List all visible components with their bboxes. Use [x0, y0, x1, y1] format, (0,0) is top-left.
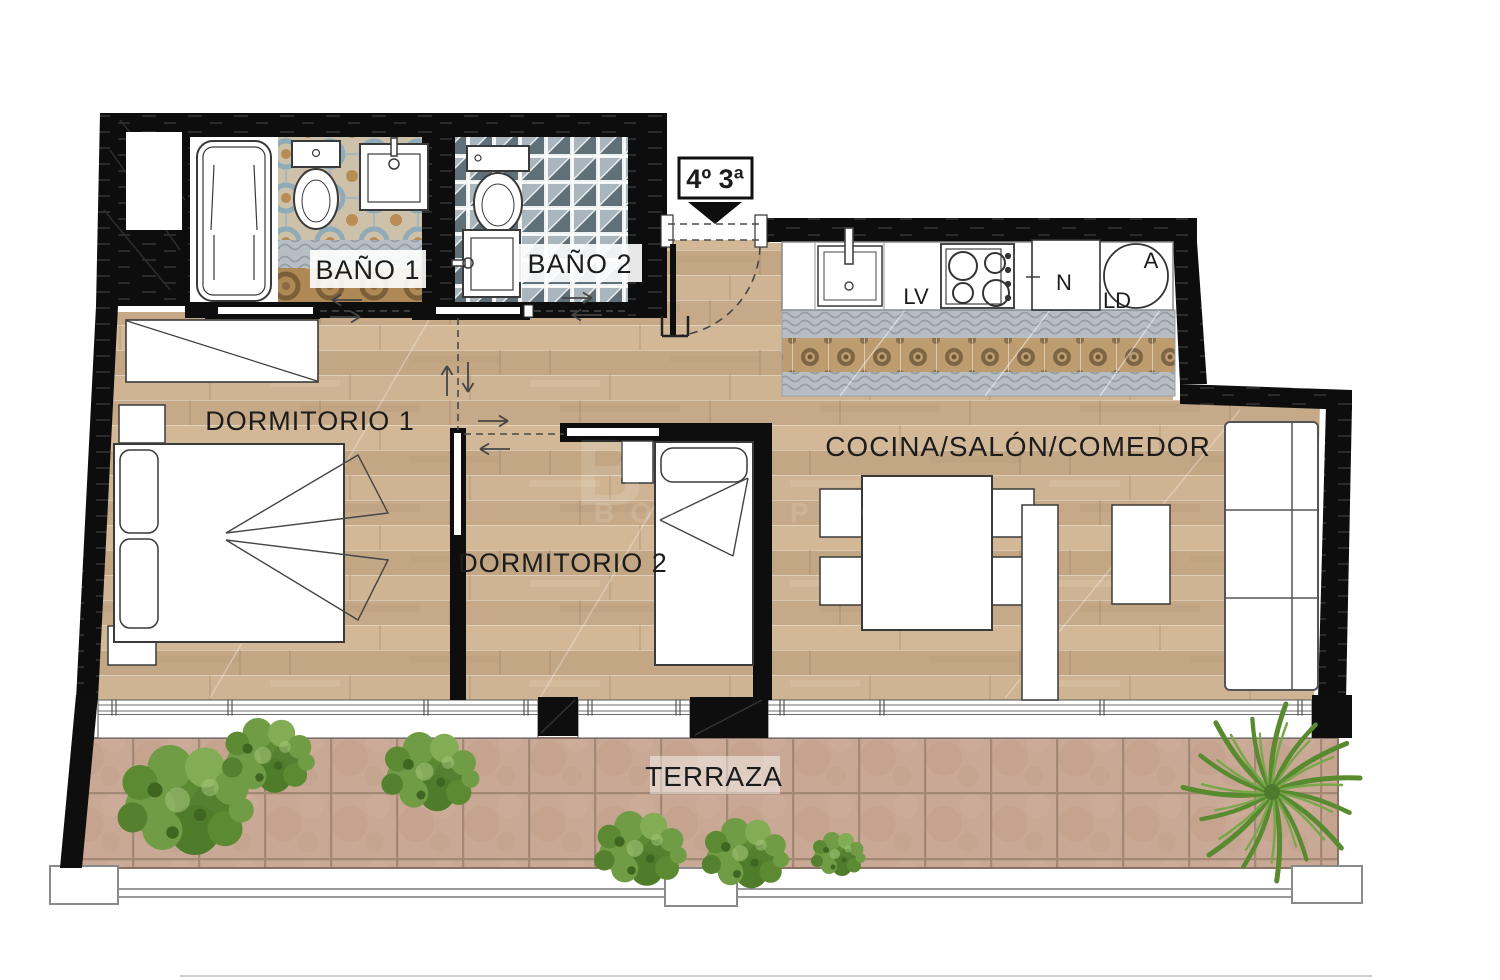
- sideboard: [1022, 505, 1058, 700]
- nightstand: [119, 405, 165, 443]
- unit-label: 4º 3ª: [679, 158, 752, 224]
- fridge-label: N: [1056, 270, 1072, 295]
- window-pier: [690, 697, 768, 738]
- chair: [820, 557, 866, 605]
- shaft-duct: [126, 132, 182, 230]
- room-label-bano1: BAÑO 1: [315, 254, 420, 285]
- unit-label-text: 4º 3ª: [686, 164, 743, 194]
- sofa: [1225, 422, 1318, 690]
- window-segment: [578, 700, 690, 738]
- watermark-left: BOU: [594, 497, 704, 528]
- watermark-right: PRO: [790, 497, 899, 528]
- pillow: [120, 450, 158, 533]
- room-label-salon: COCINA/SALÓN/COMEDOR: [825, 431, 1211, 462]
- window-segment: [98, 700, 538, 738]
- laundry-label: LD: [1103, 288, 1131, 313]
- bathtub: [197, 141, 271, 301]
- room-label-bano2: BAÑO 2: [527, 248, 632, 279]
- room-label-dorm1: DORMITORIO 1: [205, 406, 415, 436]
- entrance-arrow-icon: [688, 202, 742, 224]
- single-bed: [655, 442, 753, 665]
- floor-plan-page: 4º 3ª: [0, 0, 1500, 980]
- wardrobe: [126, 320, 318, 382]
- sink: [360, 138, 428, 210]
- washer-drum-label: A: [1144, 248, 1159, 273]
- sliding-door-dorm1: [454, 433, 461, 535]
- door-jamb: [661, 215, 673, 247]
- railing-pillar: [1292, 866, 1362, 903]
- railing-pillar: [50, 866, 118, 904]
- dishwasher-label: LV: [903, 284, 929, 309]
- door-jamb: [755, 215, 767, 247]
- sink: [452, 230, 520, 297]
- tv-unit: [1112, 505, 1170, 604]
- room-label-dorm2: DORMITORIO 2: [458, 548, 668, 578]
- room-label-terraza: TERRAZA: [645, 761, 783, 792]
- kitchen-floor-tiles: [782, 310, 1175, 396]
- pillow: [120, 539, 158, 628]
- toilet: [292, 141, 340, 229]
- pillow: [661, 448, 747, 482]
- window-pier: [538, 697, 578, 736]
- floor-plan-svg: 4º 3ª: [0, 0, 1500, 980]
- window-segment: [768, 700, 1312, 738]
- entrance-door-leaf: [670, 244, 676, 336]
